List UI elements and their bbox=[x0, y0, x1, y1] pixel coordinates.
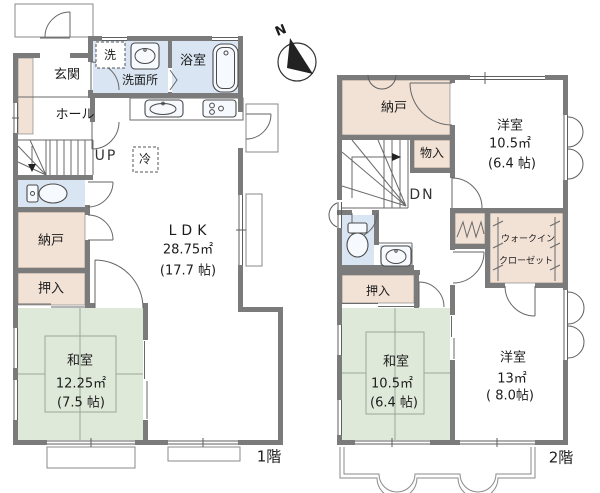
wic-label-line1: ウォークイン bbox=[501, 236, 555, 245]
storage1f-door-arc bbox=[88, 215, 113, 240]
floor1-label: 1階 bbox=[257, 450, 282, 465]
room-label-tatami2f: 和室 bbox=[383, 356, 409, 369]
backdoor-step bbox=[246, 104, 278, 152]
balcony-inner bbox=[344, 447, 531, 492]
tatami1f-door-arc bbox=[95, 260, 143, 308]
room-label-tatami1f: 和室 bbox=[67, 355, 93, 368]
room-label-storage2f: 納戸 bbox=[381, 102, 407, 115]
toilet1f-icon bbox=[27, 185, 38, 202]
fridge-label: 冷 bbox=[139, 153, 151, 165]
room-label-bedroom-small: 洋室 bbox=[497, 120, 523, 133]
floor2-label: 2階 bbox=[549, 451, 574, 466]
bay-window-box bbox=[246, 194, 262, 266]
stairs-floor1 bbox=[18, 140, 85, 175]
balcony-outer bbox=[340, 447, 535, 493]
ldk-size: (17.7 帖) bbox=[160, 265, 216, 278]
bedroom-small-area: 10.5㎡ bbox=[489, 138, 531, 151]
bedroom-small-size: (6.4 帖) bbox=[488, 158, 536, 171]
tatami2f-door-arc bbox=[419, 282, 444, 307]
stairs-up-label: UP bbox=[95, 149, 118, 163]
entrance-door-arc bbox=[45, 12, 70, 37]
stairs-floor2 bbox=[342, 140, 406, 208]
hall-ldk-door-arc bbox=[92, 122, 119, 149]
tatami1f-size: (7.5 帖) bbox=[57, 397, 105, 410]
room-label-laundry: 洗 bbox=[104, 49, 116, 61]
room-label-bathroom: 浴室 bbox=[180, 55, 206, 68]
tatami2f-floor bbox=[342, 308, 450, 440]
wic-door-arc bbox=[505, 286, 535, 316]
ldk-area: 28.75㎡ bbox=[163, 244, 213, 257]
room-label-closet2f: 押入 bbox=[366, 285, 390, 297]
sliding-door-tatami1f bbox=[145, 341, 148, 419]
tatami1f-area: 12.25㎡ bbox=[56, 378, 106, 391]
floorplan-graphics bbox=[0, 0, 600, 493]
room-label-washroom: 洗面所 bbox=[122, 74, 158, 86]
room-label-ldk: LDK bbox=[169, 224, 212, 238]
bedroom-large-area: 13㎡ bbox=[497, 373, 527, 386]
floor-plan: N 玄関 ホール 洗 洗面所 浴室 UP 冷 LDK 28.75㎡ (17.7 … bbox=[0, 0, 600, 493]
walkin-closet-floor bbox=[490, 213, 563, 283]
toilet1f-door-arc bbox=[88, 182, 113, 207]
entrance-porch bbox=[15, 4, 93, 37]
bedroom-large-size: ( 8.0帖) bbox=[486, 390, 534, 403]
room-label-closet1f: 押入 bbox=[38, 283, 64, 296]
stove-icon bbox=[203, 100, 236, 117]
room-label-entrance: 玄関 bbox=[54, 69, 80, 82]
terrace-right bbox=[168, 447, 240, 461]
bedroom-small-door-arc bbox=[452, 178, 482, 208]
room-label-cabinet2f: 物入 bbox=[420, 147, 444, 159]
compass bbox=[278, 38, 316, 81]
room-label-storage1f: 納戸 bbox=[38, 235, 64, 248]
room-label-hall: ホール bbox=[55, 109, 94, 122]
toilet2f-icon bbox=[348, 223, 367, 233]
stairs-down-label: DN bbox=[409, 188, 434, 202]
shoe-cabinet bbox=[18, 58, 33, 134]
tatami2f-area: 10.5㎡ bbox=[371, 378, 413, 391]
terrace-left bbox=[47, 447, 135, 468]
stairs-up-arrow bbox=[28, 164, 36, 172]
sliding-door-closet2f bbox=[342, 304, 414, 307]
wic-label-line2: クローゼット bbox=[499, 258, 553, 267]
sliding-door-tatami2f bbox=[452, 316, 455, 359]
tatami2f-size: (6.4 帖) bbox=[370, 397, 418, 410]
bedroom-large-door-arc bbox=[453, 252, 484, 283]
back-door-arc bbox=[246, 114, 271, 139]
room-label-bedroom-large: 洋室 bbox=[500, 352, 526, 365]
